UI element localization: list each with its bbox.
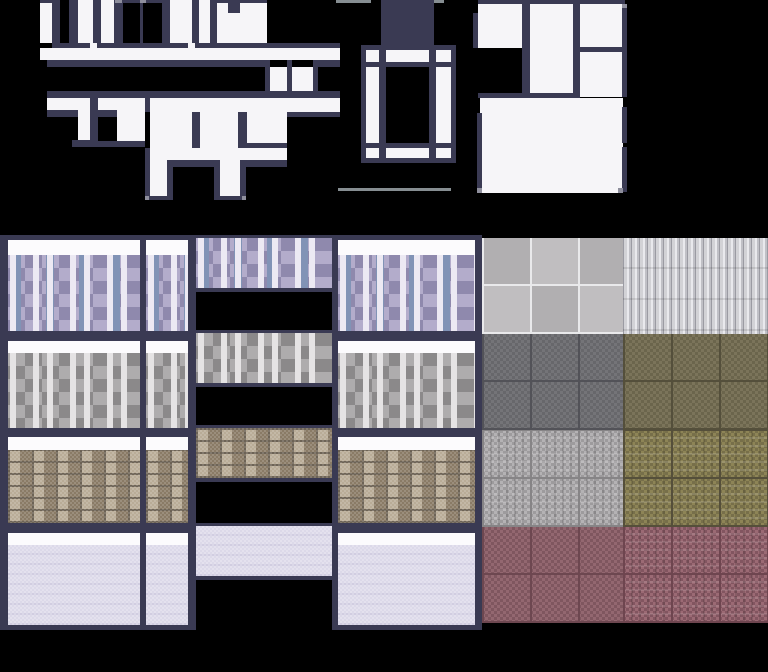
col-d-plain-lavender-cap [338, 533, 475, 545]
col-b-plain-lavender [146, 545, 188, 625]
col-d-lavender-stone-cap [338, 240, 475, 255]
col-b-gray-stone-cap [146, 341, 188, 353]
col-c-plain-lavender [196, 526, 332, 576]
swatch-check-maroon [482, 527, 623, 623]
col-d-plain-lavender [338, 545, 475, 625]
swatch-ornate-maroon [623, 527, 768, 623]
col-a-plain-lavender [8, 545, 140, 625]
col-c-brown-brick-edge [196, 478, 332, 482]
col-a-brown-brick-cap [8, 437, 140, 450]
col-b-plain-lavender-cap [146, 533, 188, 545]
col-b-lavender-stone [146, 255, 188, 331]
col-b-lavender-stone-cap [146, 240, 188, 255]
swatch-planks-white [623, 238, 768, 334]
col-c-lavender-stone [196, 238, 332, 288]
tileset-image [0, 0, 768, 672]
col-a-lavender-stone-cap [8, 240, 140, 255]
col-c-gray-stone [196, 333, 332, 383]
swatch-ornate-gray [482, 430, 623, 527]
col-c-plain-lavender-edge [196, 576, 332, 580]
col-b-gray-stone [146, 353, 188, 428]
swatch-ornate-olive [623, 430, 768, 527]
col-a-gray-stone [8, 353, 140, 428]
swatch-check-slate [482, 334, 623, 430]
col-c-gray-stone-edge [196, 383, 332, 387]
col-d-brown-brick-cap [338, 437, 475, 450]
col-d-gray-stone-cap [338, 341, 475, 353]
col-d-brown-brick [338, 450, 475, 523]
col-a-lavender-stone [8, 255, 140, 331]
texture-tiles-section [0, 0, 768, 672]
col-d-gray-stone [338, 353, 475, 428]
col-a-gray-stone-cap [8, 341, 140, 353]
col-a-brown-brick [8, 450, 140, 523]
swatch-check-olive [623, 334, 768, 430]
col-b-brown-brick-cap [146, 437, 188, 450]
col-b-brown-brick [146, 450, 188, 523]
col-a-plain-lavender-cap [8, 533, 140, 545]
swatch-floor-tiles-gray [482, 238, 623, 334]
col-c-brown-brick [196, 428, 332, 478]
col-d-lavender-stone [338, 255, 475, 331]
col-c-lavender-stone-edge [196, 288, 332, 292]
